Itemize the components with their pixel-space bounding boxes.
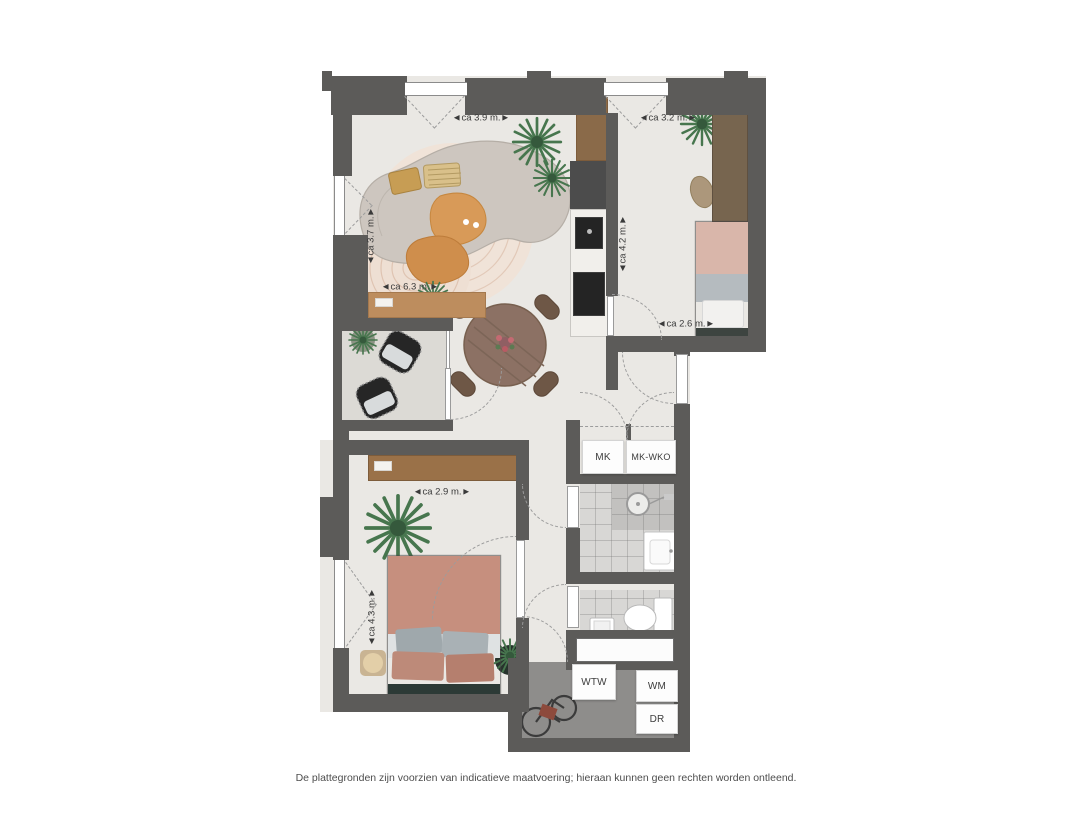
window	[334, 176, 345, 235]
wardrobe-closet	[576, 638, 674, 662]
wall-segment	[333, 440, 529, 455]
door-leaf	[676, 354, 688, 404]
door-leaf	[567, 486, 579, 528]
disclaimer-text: De plattegronden zijn voorzien van indic…	[0, 772, 1092, 784]
window	[405, 82, 467, 96]
door-leaf	[567, 586, 579, 628]
wall-segment	[748, 113, 766, 352]
wall-segment	[566, 572, 690, 584]
wall-segment	[333, 513, 349, 560]
bedroom1-sideboard-item	[374, 461, 392, 471]
window	[334, 560, 345, 648]
kitchen-dark-unit	[570, 161, 608, 209]
furniture-layer	[0, 0, 1092, 828]
living-plant2-icon	[534, 160, 570, 196]
kitchen-faucet-icon	[587, 229, 592, 234]
wall-segment	[527, 71, 551, 79]
living-plant-icon	[513, 118, 561, 166]
dim-kitchen-wall: ◄ca 4.2 m.►	[618, 215, 629, 273]
closet-label-mk: MK	[582, 440, 624, 474]
dim-living-width: ◄ca 3.9 m.►	[452, 113, 510, 124]
dim-living-depth: ◄ca 3.7 m.►	[366, 207, 377, 265]
bedroom1-pouf-top	[363, 653, 383, 673]
bedroom2-desk	[712, 110, 748, 222]
technical-label-dr: DR	[636, 704, 678, 734]
bedroom1-plant-icon	[366, 496, 430, 560]
floorplan-canvas: MK MK-WKO WTW WM DR ◄ca 3.9 m.► ◄ca 3.2 …	[0, 0, 1092, 828]
wall-segment	[566, 474, 690, 484]
door-leaf	[516, 540, 525, 618]
dim-bedroom1-depth: ◄ca 4.3 m.►	[367, 588, 378, 646]
wall-segment	[333, 113, 352, 176]
shower-head-icon	[627, 493, 674, 515]
dim-bedroom2-length: ◄ca 2.6 m.►	[657, 319, 715, 330]
wall-segment	[333, 318, 453, 331]
technical-label-wm: WM	[636, 670, 678, 702]
wall-segment	[333, 235, 368, 320]
dim-living-length: ◄ca 6.3 m.►	[381, 282, 439, 293]
wall-segment	[606, 113, 618, 296]
balcony-chair	[375, 327, 424, 376]
balcony-chair	[353, 374, 401, 422]
dim-bedroom1-width: ◄ca 2.9 m.►	[413, 487, 471, 498]
dim-bedroom2-width: ◄ca 3.2 m.►	[639, 113, 697, 124]
wall-segment	[320, 497, 334, 557]
wall-segment	[333, 331, 342, 426]
wall-segment	[465, 78, 606, 115]
technical-label-wtw: WTW	[572, 664, 616, 700]
wall-segment	[566, 420, 580, 474]
wall-segment	[508, 738, 690, 752]
wall-segment	[333, 420, 453, 431]
sideboard-item	[375, 298, 393, 307]
wall-segment	[333, 694, 529, 712]
wall-segment	[606, 352, 618, 390]
kitchen-oven	[573, 272, 605, 316]
wall-segment	[666, 78, 766, 115]
wall-segment	[331, 76, 407, 115]
wall-segment	[724, 71, 748, 79]
closet-label-mk-wko: MK-WKO	[626, 440, 676, 474]
window	[604, 82, 668, 96]
bathroom-vanity	[644, 532, 676, 570]
